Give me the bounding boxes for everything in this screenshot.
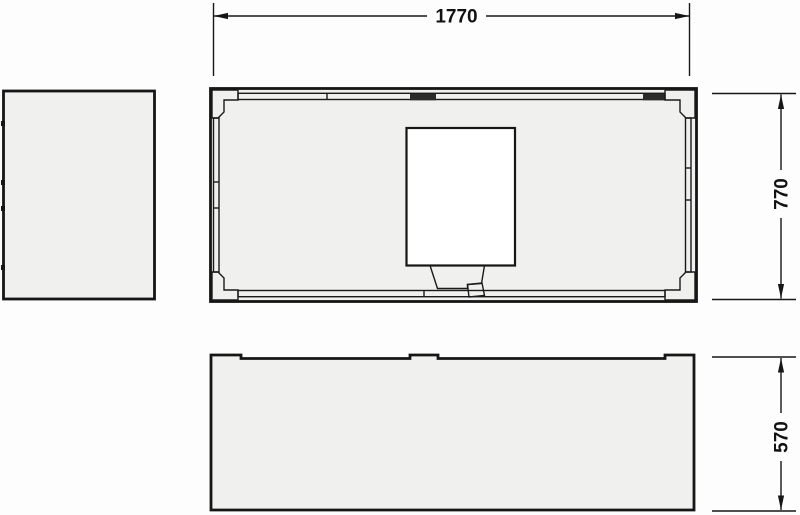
rail-connector: [643, 94, 665, 101]
side-view-joint-tick: [1, 121, 5, 126]
side-view-panel: [4, 91, 155, 299]
dimension-width: 1770: [214, 3, 690, 76]
front-view: [211, 355, 694, 510]
dimension-depth: 770: [712, 94, 796, 300]
top-view: [211, 89, 697, 302]
tub-cutout: [407, 128, 516, 266]
dimension-height: 570: [712, 357, 796, 511]
technical-drawing-canvas: 1770 770 570: [0, 0, 800, 515]
arrowhead-left: [214, 13, 229, 19]
rail-connector: [410, 94, 436, 101]
side-view-joint-tick: [1, 265, 5, 270]
dimension-depth-label: 770: [772, 178, 793, 210]
side-view-joint-tick: [1, 206, 5, 211]
arrowhead-up: [778, 358, 784, 373]
side-view: [1, 91, 155, 299]
arrowhead-up: [778, 95, 784, 110]
arrowhead-down: [778, 284, 784, 299]
front-view-panel: [211, 355, 694, 510]
arrowhead-right: [675, 13, 690, 19]
dimension-height-label: 570: [772, 421, 793, 453]
side-view-joint-tick: [1, 180, 5, 185]
dimension-width-label: 1770: [435, 7, 477, 28]
arrowhead-down: [778, 496, 784, 511]
